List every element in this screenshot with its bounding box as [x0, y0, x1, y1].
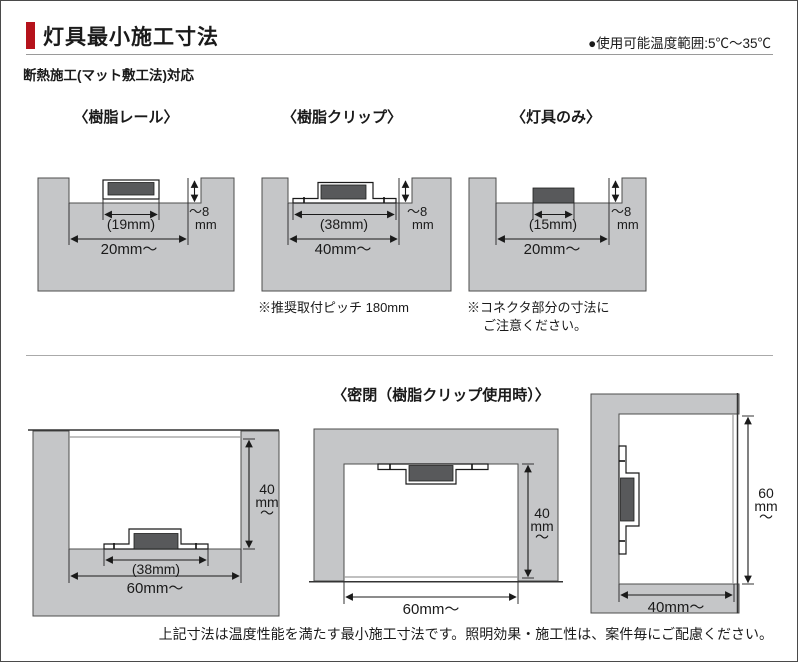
height-dimension: 60 mm ～	[742, 416, 778, 584]
cavity-walls	[314, 429, 558, 581]
opening-width-dimension: 60mm～	[344, 582, 518, 618]
svg-text:mm: mm	[617, 217, 639, 232]
heading-sealed: 〈密閉（樹脂クリップ使用時）〉	[291, 384, 591, 405]
svg-text:40mm～: 40mm～	[315, 241, 372, 258]
pitch-note: ※推奨取付ピッチ 180mm	[258, 297, 409, 316]
lamp-fixture	[134, 534, 178, 550]
svg-text:(19mm): (19mm)	[107, 216, 155, 232]
svg-text:40mm～: 40mm～	[648, 599, 705, 616]
header-rule	[26, 54, 773, 55]
svg-text:～: ～	[260, 505, 274, 521]
svg-text:60mm～: 60mm～	[127, 580, 184, 597]
diagram-sealed-floor: 40 mm ～ (38mm) 60mm～	[26, 416, 291, 616]
temperature-range-note: ●使用可能温度範囲:5℃～35℃	[588, 32, 771, 52]
diagram-lamp-only: ～8 mm (15mm) 20mm～	[463, 171, 678, 301]
lamp-fixture	[321, 185, 366, 199]
heading-resin-clip: 〈樹脂クリップ〉	[277, 106, 407, 127]
svg-text:(38mm): (38mm)	[320, 216, 368, 232]
connector-note-line2: ご注意ください。	[483, 315, 587, 334]
diagram-sealed-ceiling: 40 mm ～ 60mm～	[309, 421, 569, 621]
heading-lamp-only: 〈灯具のみ〉	[496, 106, 616, 127]
catalog-page: 灯具最小施工寸法 ●使用可能温度範囲:5℃～35℃ 断熱施工(マット敷工法)対応…	[0, 0, 798, 662]
page-title: 灯具最小施工寸法	[43, 21, 219, 51]
svg-text:20mm～: 20mm～	[101, 241, 158, 258]
footer-note: 上記寸法は温度性能を満たす最小施工寸法です。照明効果・施工性は、案件毎にご配慮く…	[159, 624, 773, 644]
lamp-fixture	[409, 466, 453, 482]
svg-text:mm: mm	[195, 217, 217, 232]
cavity-walls	[591, 394, 739, 613]
heading-resin-rail: 〈樹脂レール〉	[61, 106, 191, 127]
svg-text:60mm～: 60mm～	[403, 601, 460, 618]
connector-note-line1: ※コネクタ部分の寸法に	[467, 297, 609, 316]
svg-text:mm: mm	[412, 217, 434, 232]
red-accent-bar	[26, 22, 35, 49]
lamp-fixture	[108, 183, 154, 196]
svg-text:～: ～	[759, 509, 773, 525]
lamp-fixture	[621, 478, 635, 521]
insulation-subtitle: 断熱施工(マット敷工法)対応	[23, 64, 194, 84]
section-divider	[26, 355, 773, 356]
svg-text:(38mm): (38mm)	[132, 561, 180, 577]
diagram-resin-clip: ～8 mm (38mm) 40mm～	[256, 171, 461, 301]
diagram-sealed-wall: 60 mm ～ 40mm～	[586, 391, 798, 619]
svg-text:(15mm): (15mm)	[529, 216, 577, 232]
lamp-fixture	[533, 188, 574, 203]
svg-text:20mm～: 20mm～	[524, 241, 581, 258]
svg-text:～: ～	[535, 529, 549, 545]
diagram-resin-rail: ～8 mm (19mm) 20mm～	[33, 171, 238, 301]
